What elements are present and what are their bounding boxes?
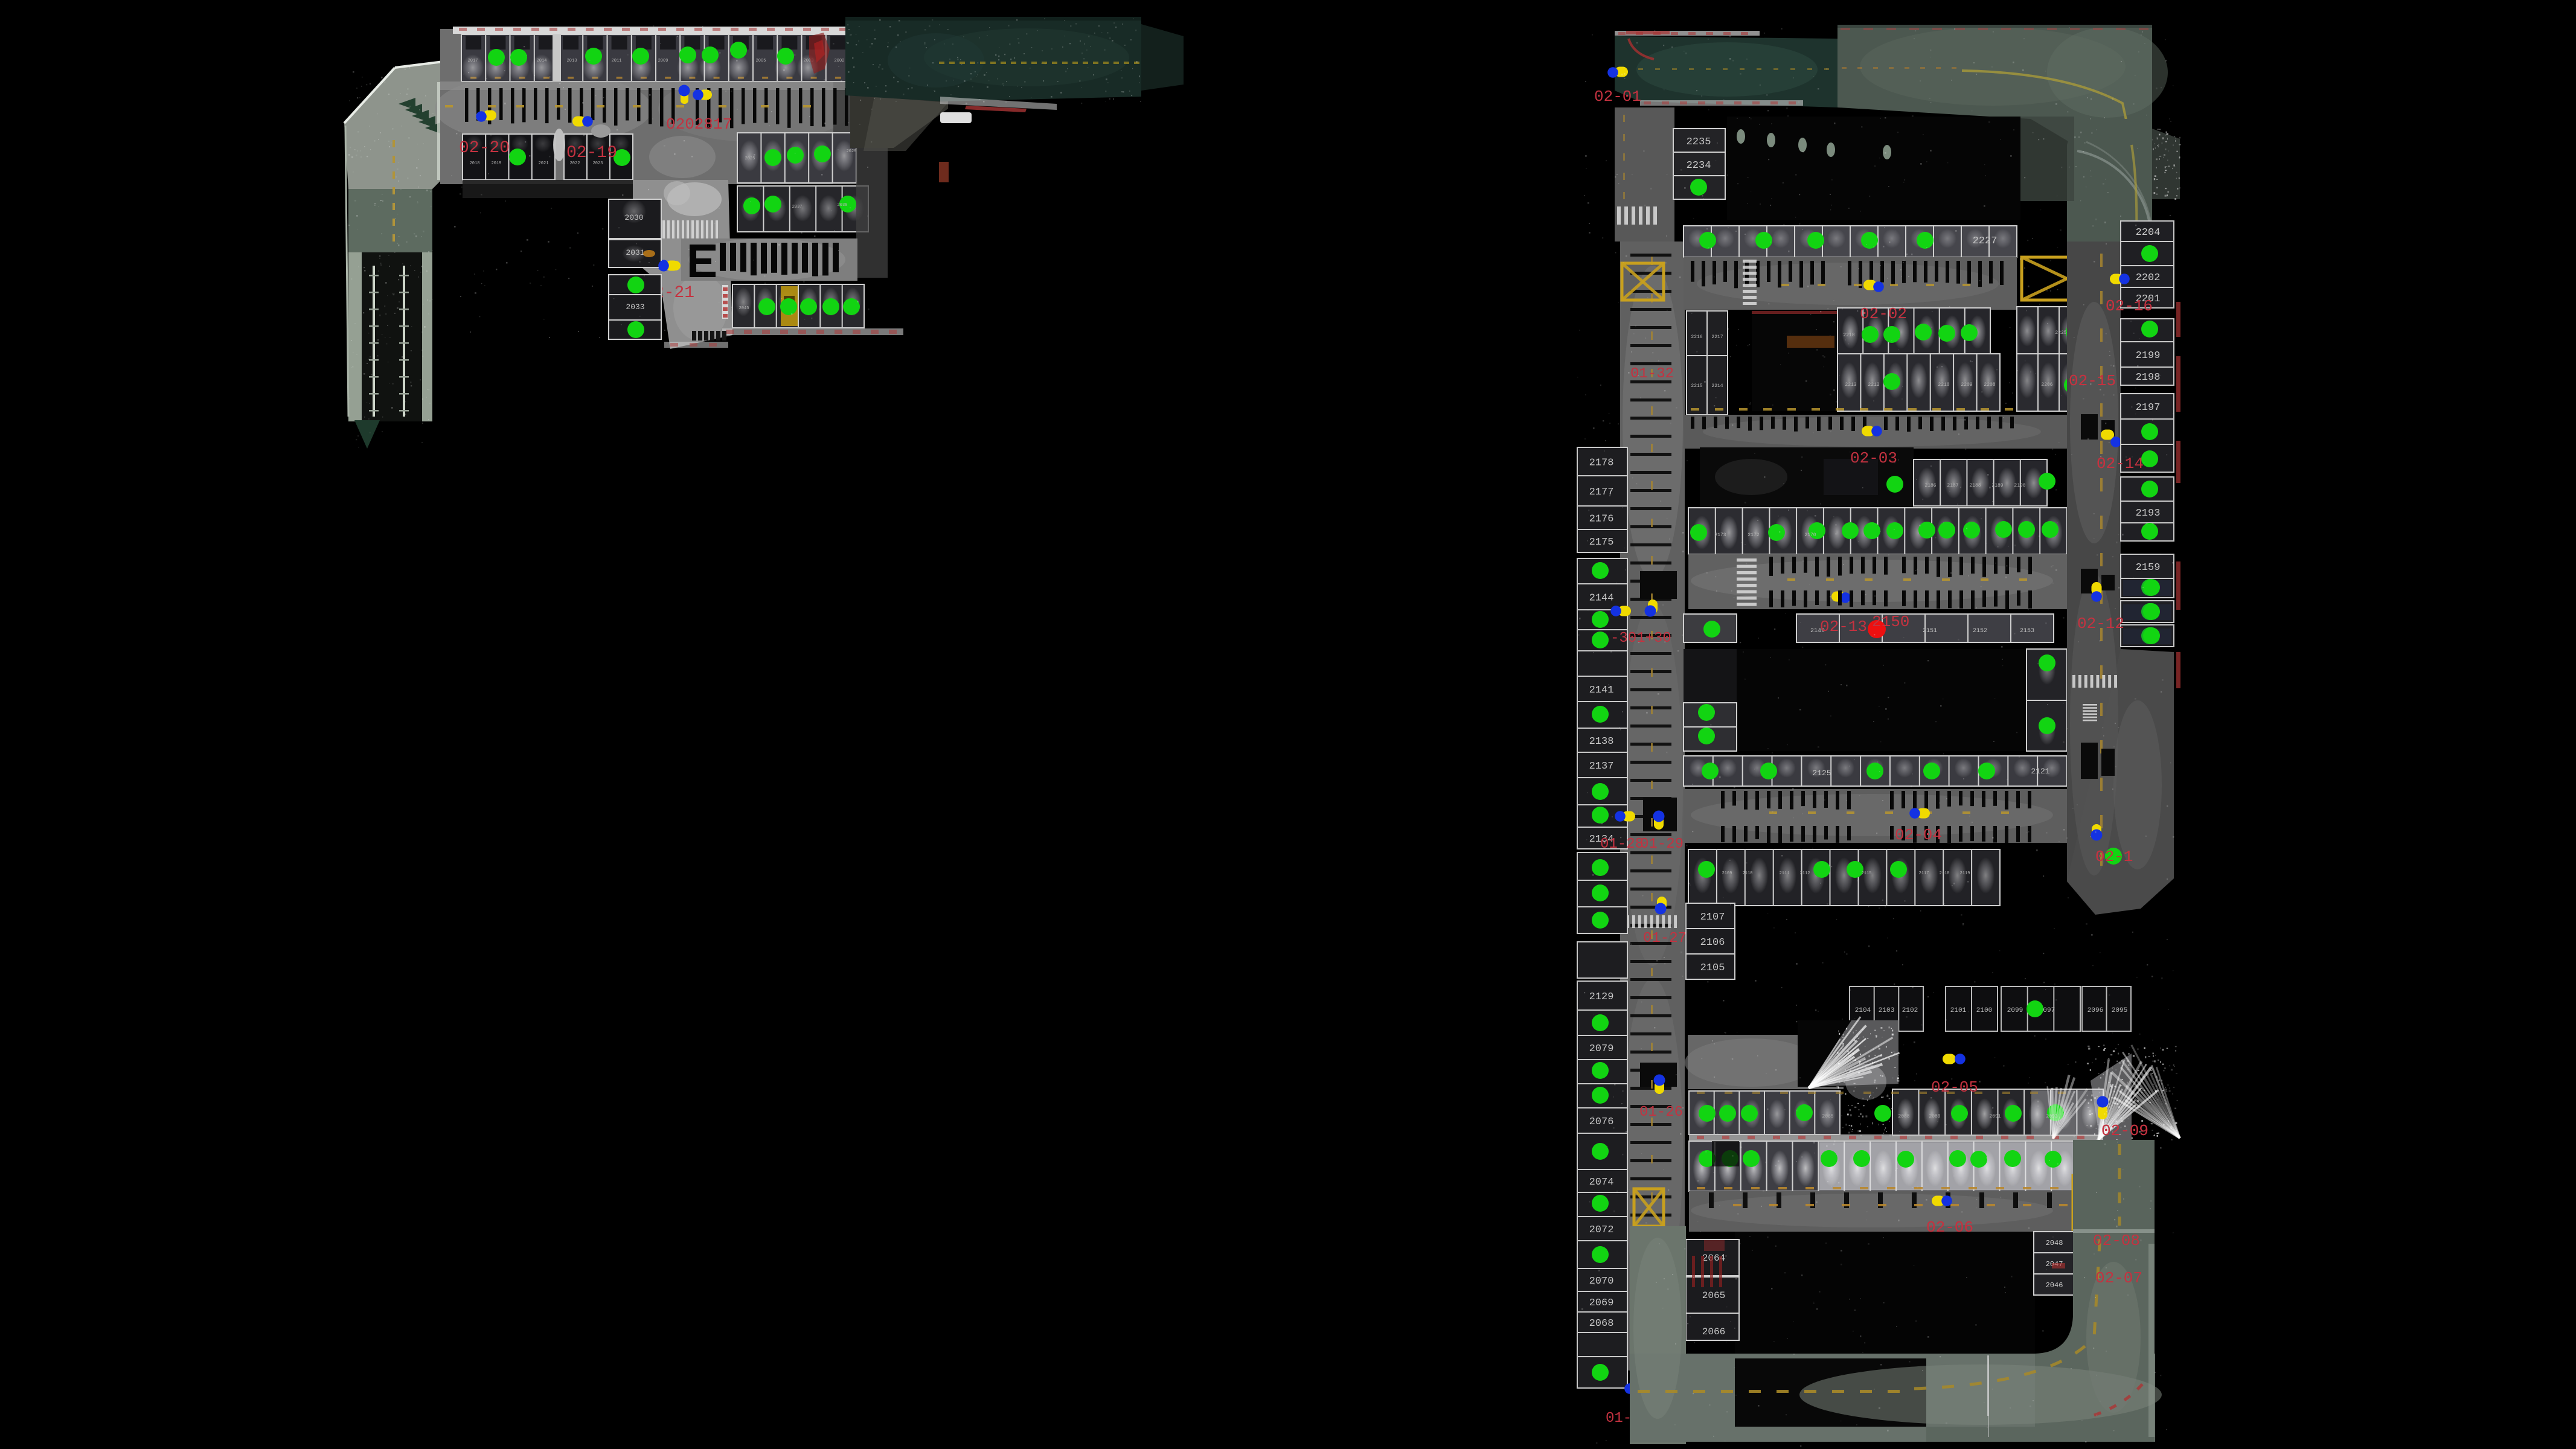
svg-text:2209: 2209: [1961, 382, 1972, 388]
svg-text:2025: 2025: [745, 156, 755, 161]
svg-text:2109: 2109: [1722, 871, 1732, 876]
svg-text:2193: 2193: [2136, 508, 2161, 519]
svg-text:2118: 2118: [1940, 871, 1950, 876]
svg-text:2045: 2045: [739, 306, 749, 311]
svg-text:02-19: 02-19: [566, 144, 617, 162]
svg-text:2105: 2105: [1700, 962, 1725, 974]
svg-text:2138: 2138: [1589, 736, 1614, 747]
svg-text:02-14: 02-14: [2097, 455, 2144, 473]
svg-text:2046: 2046: [2046, 1281, 2063, 1290]
svg-text:2206: 2206: [2041, 382, 2052, 388]
svg-text:2202: 2202: [2136, 272, 2161, 284]
svg-text:2088: 2088: [1898, 1114, 1909, 1119]
svg-text:2175: 2175: [1589, 537, 1614, 548]
svg-text:02-09: 02-09: [2101, 1122, 2148, 1140]
svg-text:2151: 2151: [1923, 628, 1937, 635]
svg-text:2159: 2159: [2136, 562, 2161, 574]
svg-text:2014: 2014: [537, 59, 547, 63]
svg-text:2218: 2218: [1843, 333, 1854, 338]
svg-text:2227: 2227: [1973, 235, 1998, 247]
svg-text:2070: 2070: [1589, 1276, 1614, 1287]
svg-text:2208: 2208: [1984, 382, 1995, 388]
svg-text:0202817: 0202817: [666, 115, 732, 133]
svg-text:2110: 2110: [1743, 871, 1753, 876]
svg-text:2099: 2099: [2007, 1007, 2023, 1014]
svg-text:2212: 2212: [1868, 382, 1879, 388]
svg-text:02-1: 02-1: [2095, 848, 2133, 866]
svg-text:2013: 2013: [567, 59, 577, 63]
svg-text:01-29: 01-29: [1640, 836, 1684, 852]
svg-text:2079: 2079: [1589, 1043, 1614, 1055]
svg-text:2076: 2076: [1589, 1116, 1614, 1128]
svg-text:2141: 2141: [1589, 685, 1614, 696]
svg-text:02-02: 02-02: [1860, 305, 1907, 323]
svg-text:2187: 2187: [1947, 483, 1958, 488]
svg-text:2065: 2065: [1702, 1290, 1725, 1301]
svg-text:01-27: 01-27: [1643, 930, 1687, 947]
svg-text:2066: 2066: [1702, 1326, 1725, 1337]
svg-text:2115: 2115: [1862, 871, 1872, 876]
svg-text:2048: 2048: [2046, 1239, 2063, 1247]
svg-text:2065: 2065: [1822, 1114, 1833, 1119]
svg-text:2198: 2198: [2136, 372, 2161, 383]
svg-text:2068: 2068: [1589, 1318, 1614, 1329]
svg-text:2213: 2213: [1845, 382, 1856, 388]
svg-text:02-08: 02-08: [2093, 1232, 2140, 1250]
svg-text:-301+30: -301+30: [1610, 630, 1671, 647]
svg-text:02-12: 02-12: [2077, 615, 2124, 633]
svg-text:2091: 2091: [1989, 1114, 2001, 1119]
svg-text:2153: 2153: [2020, 628, 2034, 635]
svg-text:2009: 2009: [658, 59, 668, 63]
svg-text:2074: 2074: [1589, 1177, 1614, 1188]
svg-text:2002: 2002: [835, 59, 845, 63]
svg-text:02-07: 02-07: [2095, 1269, 2142, 1287]
svg-text:2152: 2152: [1973, 628, 1987, 635]
svg-text:02-04: 02-04: [1895, 826, 1942, 844]
svg-text:2177: 2177: [1589, 487, 1614, 498]
svg-text:2106: 2106: [1700, 937, 1725, 948]
svg-text:2095: 2095: [2112, 1007, 2127, 1014]
svg-text:2186: 2186: [1924, 483, 1936, 488]
svg-text:01-28: 01-28: [1600, 836, 1644, 852]
svg-text:2072: 2072: [1589, 1224, 1614, 1236]
svg-text:02-16: 02-16: [2106, 297, 2153, 315]
svg-text:2210: 2210: [1938, 382, 1949, 388]
svg-text:2107: 2107: [1700, 912, 1725, 923]
svg-text:2102: 2102: [1902, 1007, 1918, 1014]
svg-text:2176: 2176: [1589, 514, 1614, 525]
svg-text:2172: 2172: [1748, 533, 1759, 538]
svg-text:2121: 2121: [2031, 767, 2049, 776]
svg-text:2173: 2173: [1714, 533, 1726, 538]
svg-text:02-01: 02-01: [1594, 88, 1641, 106]
svg-text:2214: 2214: [1711, 383, 1723, 389]
svg-text:2129: 2129: [1589, 991, 1614, 1003]
svg-text:2029: 2029: [847, 149, 857, 154]
svg-text:2216: 2216: [1691, 334, 1702, 340]
svg-text:2119: 2119: [1960, 871, 1970, 876]
svg-text:2038: 2038: [838, 203, 848, 208]
svg-text:2217: 2217: [1711, 334, 1723, 340]
svg-text:2178: 2178: [1589, 458, 1614, 469]
svg-text:02-15: 02-15: [2069, 372, 2116, 390]
svg-text:2103: 2103: [1879, 1007, 1894, 1014]
svg-text:2197: 2197: [2136, 402, 2161, 414]
svg-text:2104: 2104: [1855, 1007, 1871, 1014]
svg-text:2069: 2069: [1589, 1297, 1614, 1309]
svg-text:2101: 2101: [1950, 1007, 1967, 1014]
svg-text:2144: 2144: [1589, 593, 1614, 604]
svg-text:2137: 2137: [1589, 761, 1614, 772]
svg-text:2190: 2190: [2014, 483, 2025, 488]
svg-text:2100: 2100: [1976, 1007, 1992, 1014]
svg-text:2170: 2170: [1804, 533, 1816, 538]
svg-text:2031: 2031: [626, 248, 644, 257]
svg-text:2235: 2235: [1687, 136, 1711, 148]
svg-text:2030: 2030: [624, 213, 643, 222]
svg-text:2033: 2033: [626, 302, 644, 312]
svg-text:2011: 2011: [612, 59, 622, 63]
svg-text:01-32: 01-32: [1630, 366, 1674, 382]
svg-text:2111: 2111: [1780, 871, 1790, 876]
svg-text:02-13: 02-13: [1820, 618, 1867, 636]
svg-text:2189: 2189: [1991, 483, 2003, 488]
svg-text:2204: 2204: [2136, 227, 2161, 238]
svg-text:2112: 2112: [1800, 871, 1810, 876]
svg-text:2215: 2215: [1691, 383, 1702, 389]
svg-text:2005: 2005: [756, 59, 766, 63]
svg-text:02-06: 02-06: [1926, 1218, 1973, 1236]
svg-text:2117: 2117: [1919, 871, 1929, 876]
svg-text:2225: 2225: [2055, 330, 2066, 336]
svg-text:2018: 2018: [470, 161, 480, 166]
svg-text:2096: 2096: [2087, 1007, 2103, 1014]
svg-text:01-26: 01-26: [1639, 1104, 1683, 1121]
svg-text:2017: 2017: [468, 59, 478, 63]
svg-text:2125: 2125: [1812, 769, 1831, 778]
svg-text:2188: 2188: [1969, 483, 1981, 488]
svg-text:2150: 2150: [1872, 613, 1909, 631]
svg-text:02-03: 02-03: [1850, 449, 1897, 467]
svg-text:2037: 2037: [792, 205, 803, 210]
svg-text:2199: 2199: [2136, 350, 2161, 362]
svg-text:2021: 2021: [539, 161, 549, 166]
svg-text:2019: 2019: [492, 161, 502, 166]
svg-text:2234: 2234: [1687, 160, 1711, 171]
svg-text:02-20: 02-20: [459, 139, 510, 158]
svg-text:02-05: 02-05: [1931, 1078, 1978, 1096]
